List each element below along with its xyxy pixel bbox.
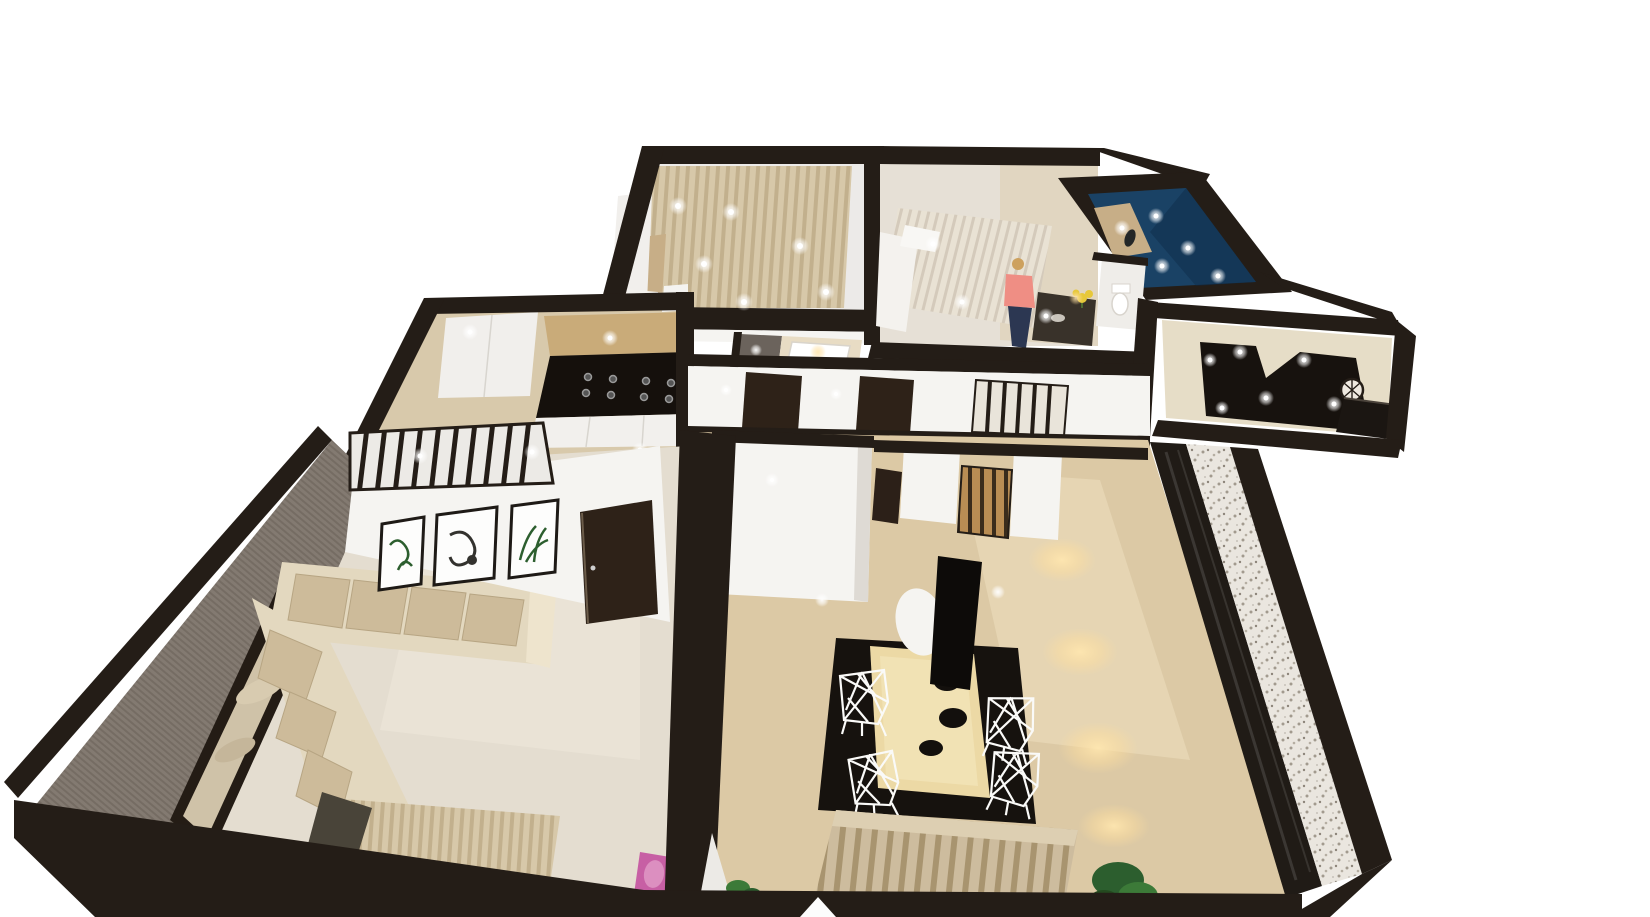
person-hair	[1012, 258, 1024, 270]
bottom-wall-right	[644, 890, 1302, 917]
corridor-door-1	[742, 372, 802, 432]
dining-door-jamb	[872, 468, 902, 524]
kitchen-cabinet-front	[530, 414, 688, 448]
toilet	[1112, 293, 1128, 315]
door-handle	[591, 566, 596, 571]
person-top	[1004, 274, 1035, 308]
gas-cooktop	[536, 352, 688, 418]
floorplan-canvas[interactable]	[0, 0, 1650, 917]
framed-print-1	[379, 517, 424, 590]
floor-glow-2	[1042, 628, 1118, 676]
floor-glow-1	[1028, 538, 1096, 582]
wc-warm-light	[1069, 291, 1083, 305]
bathroom-lamp	[750, 344, 762, 356]
screenshot-stage	[0, 0, 1650, 917]
plate-3	[919, 740, 943, 756]
bedroom1-wall-top	[642, 146, 884, 164]
corridor-door-2	[856, 376, 914, 434]
wood-slat-screen	[958, 466, 1012, 538]
corridor-slat-partition	[972, 380, 1068, 436]
living-slat-partition	[350, 423, 553, 490]
dining-wall-seg-1	[900, 446, 960, 524]
floor-glow-4	[1078, 804, 1150, 848]
wc-cistern	[1112, 284, 1130, 293]
framed-print-2	[434, 507, 497, 585]
bedroom2-wall-top	[880, 146, 1100, 166]
plate-2	[939, 708, 967, 728]
living-door	[580, 500, 658, 624]
dining-wall-seg-2	[1010, 450, 1062, 540]
floor-glow-3	[1058, 722, 1138, 774]
room-entry-hall	[1128, 298, 1416, 458]
framed-print-3	[509, 500, 558, 578]
dining-north-wall-block	[714, 438, 872, 602]
